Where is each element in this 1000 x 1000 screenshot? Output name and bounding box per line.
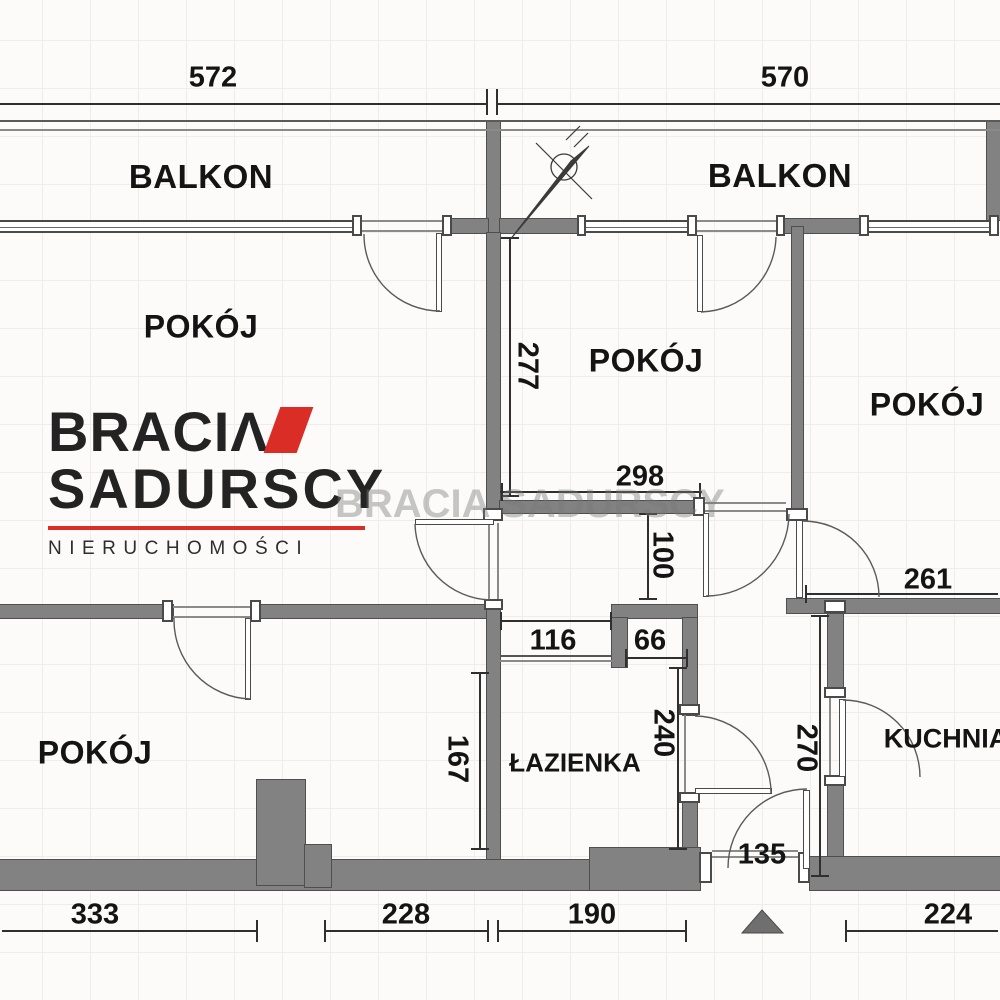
entrance-marker-icon: [742, 910, 783, 933]
room-label-lazienka: ŁAZIENKA: [509, 748, 640, 779]
dim-label-570: 570: [761, 62, 809, 95]
dim-label-298: 298: [616, 461, 664, 494]
dim-label-261: 261: [904, 564, 952, 597]
dim-label-228: 228: [382, 899, 430, 932]
room-label-balkon-right: BALKON: [708, 157, 852, 195]
dim-label-100: 100: [646, 531, 679, 579]
room-label-pokoj-middle: POKÓJ: [589, 343, 704, 380]
logo-line1: BRACIΛ: [48, 404, 386, 460]
room-label-pokoj-right: POKÓJ: [870, 387, 985, 424]
dim-label-277: 277: [511, 342, 544, 390]
dim-label-572: 572: [189, 62, 237, 95]
dim-label-135: 135: [738, 839, 786, 872]
logo-line3: NIERUCHOMOŚCI: [48, 538, 386, 560]
dim-label-240: 240: [647, 709, 680, 757]
dim-label-224: 224: [924, 899, 972, 932]
room-label-pokoj-bottom-left: POKÓJ: [38, 735, 153, 772]
dim-label-66: 66: [634, 625, 666, 658]
logo-red-underline: [48, 526, 365, 530]
north-arrow-icon: [509, 126, 592, 241]
dim-label-333: 333: [71, 899, 119, 932]
floor-plan: BALKON BALKON POKÓJ POKÓJ POKÓJ POKÓJ ŁA…: [0, 0, 1000, 1000]
room-label-pokoj-top-left: POKÓJ: [144, 309, 259, 346]
dim-label-190: 190: [568, 899, 616, 932]
dim-label-270: 270: [790, 724, 823, 772]
watermark-text: BRACIA SADURSCY: [335, 482, 725, 527]
dim-label-167: 167: [441, 735, 474, 783]
room-label-kuchnia: KUCHNIA: [884, 724, 1000, 755]
room-label-balkon-left: BALKON: [129, 158, 273, 196]
dim-label-116: 116: [530, 625, 577, 658]
